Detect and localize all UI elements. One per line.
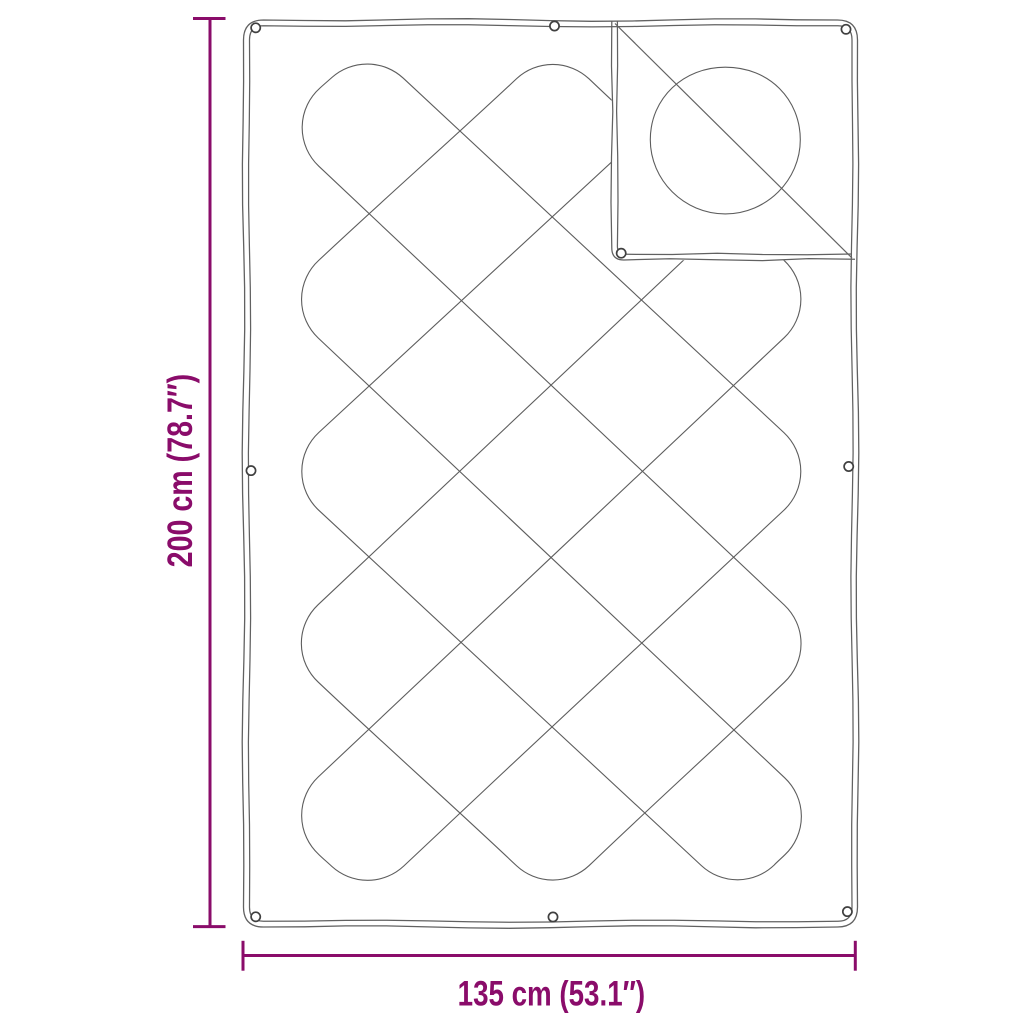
svg-text:135 cm (53.1″): 135 cm (53.1″) <box>458 975 646 1014</box>
svg-text:200 cm (78.7″): 200 cm (78.7″) <box>161 374 200 567</box>
